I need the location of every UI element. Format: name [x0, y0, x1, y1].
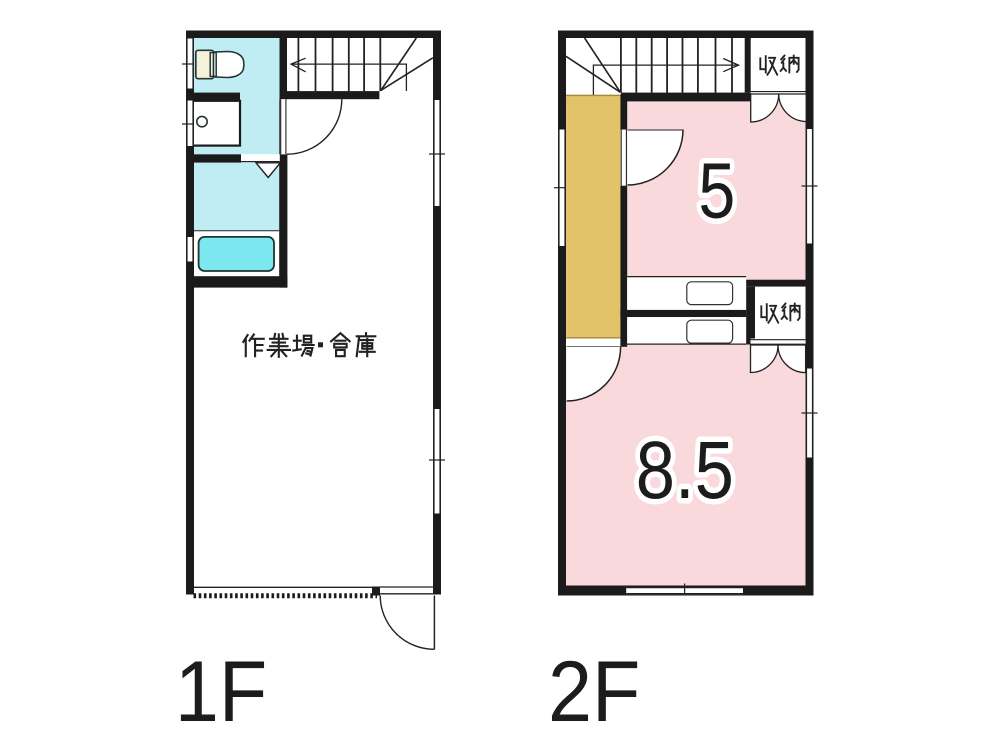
svg-text:1F: 1F	[175, 643, 267, 740]
svg-text:2F: 2F	[548, 643, 640, 740]
svg-text:8.5: 8.5	[636, 425, 734, 516]
svg-text:5: 5	[698, 147, 735, 235]
